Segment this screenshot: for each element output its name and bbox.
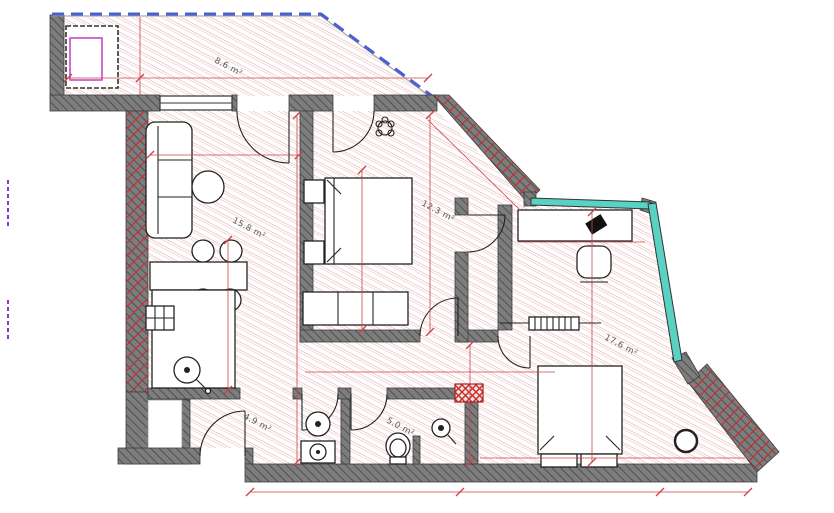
nightstand xyxy=(304,241,324,264)
sofa xyxy=(146,122,192,238)
floor-plan-canvas: 8.6 m² xyxy=(0,0,834,513)
ac-unit xyxy=(66,26,118,88)
bedroom-furniture xyxy=(303,178,412,325)
office-chair xyxy=(577,246,611,282)
washing-machine xyxy=(301,441,335,463)
balcony-area: 8.6 m² xyxy=(50,14,432,100)
guest-bed xyxy=(538,366,622,467)
kitchen-table xyxy=(150,262,247,290)
left-exterior-wall xyxy=(126,111,148,392)
wardrobe xyxy=(303,292,408,325)
desk xyxy=(518,210,632,241)
nightstand xyxy=(304,180,324,203)
kitchen-furniture xyxy=(146,240,247,394)
window xyxy=(160,96,232,110)
coffee-table xyxy=(192,171,224,203)
balcony-left-wall xyxy=(50,15,64,100)
washbasin xyxy=(306,412,330,436)
stove xyxy=(146,306,174,330)
toilet xyxy=(386,433,410,464)
round-column xyxy=(675,430,697,452)
double-bed xyxy=(325,178,412,264)
column-pillar xyxy=(455,384,483,402)
bottom-wall xyxy=(245,464,757,482)
floor-plan-drawing: 8.6 m² xyxy=(0,0,834,513)
